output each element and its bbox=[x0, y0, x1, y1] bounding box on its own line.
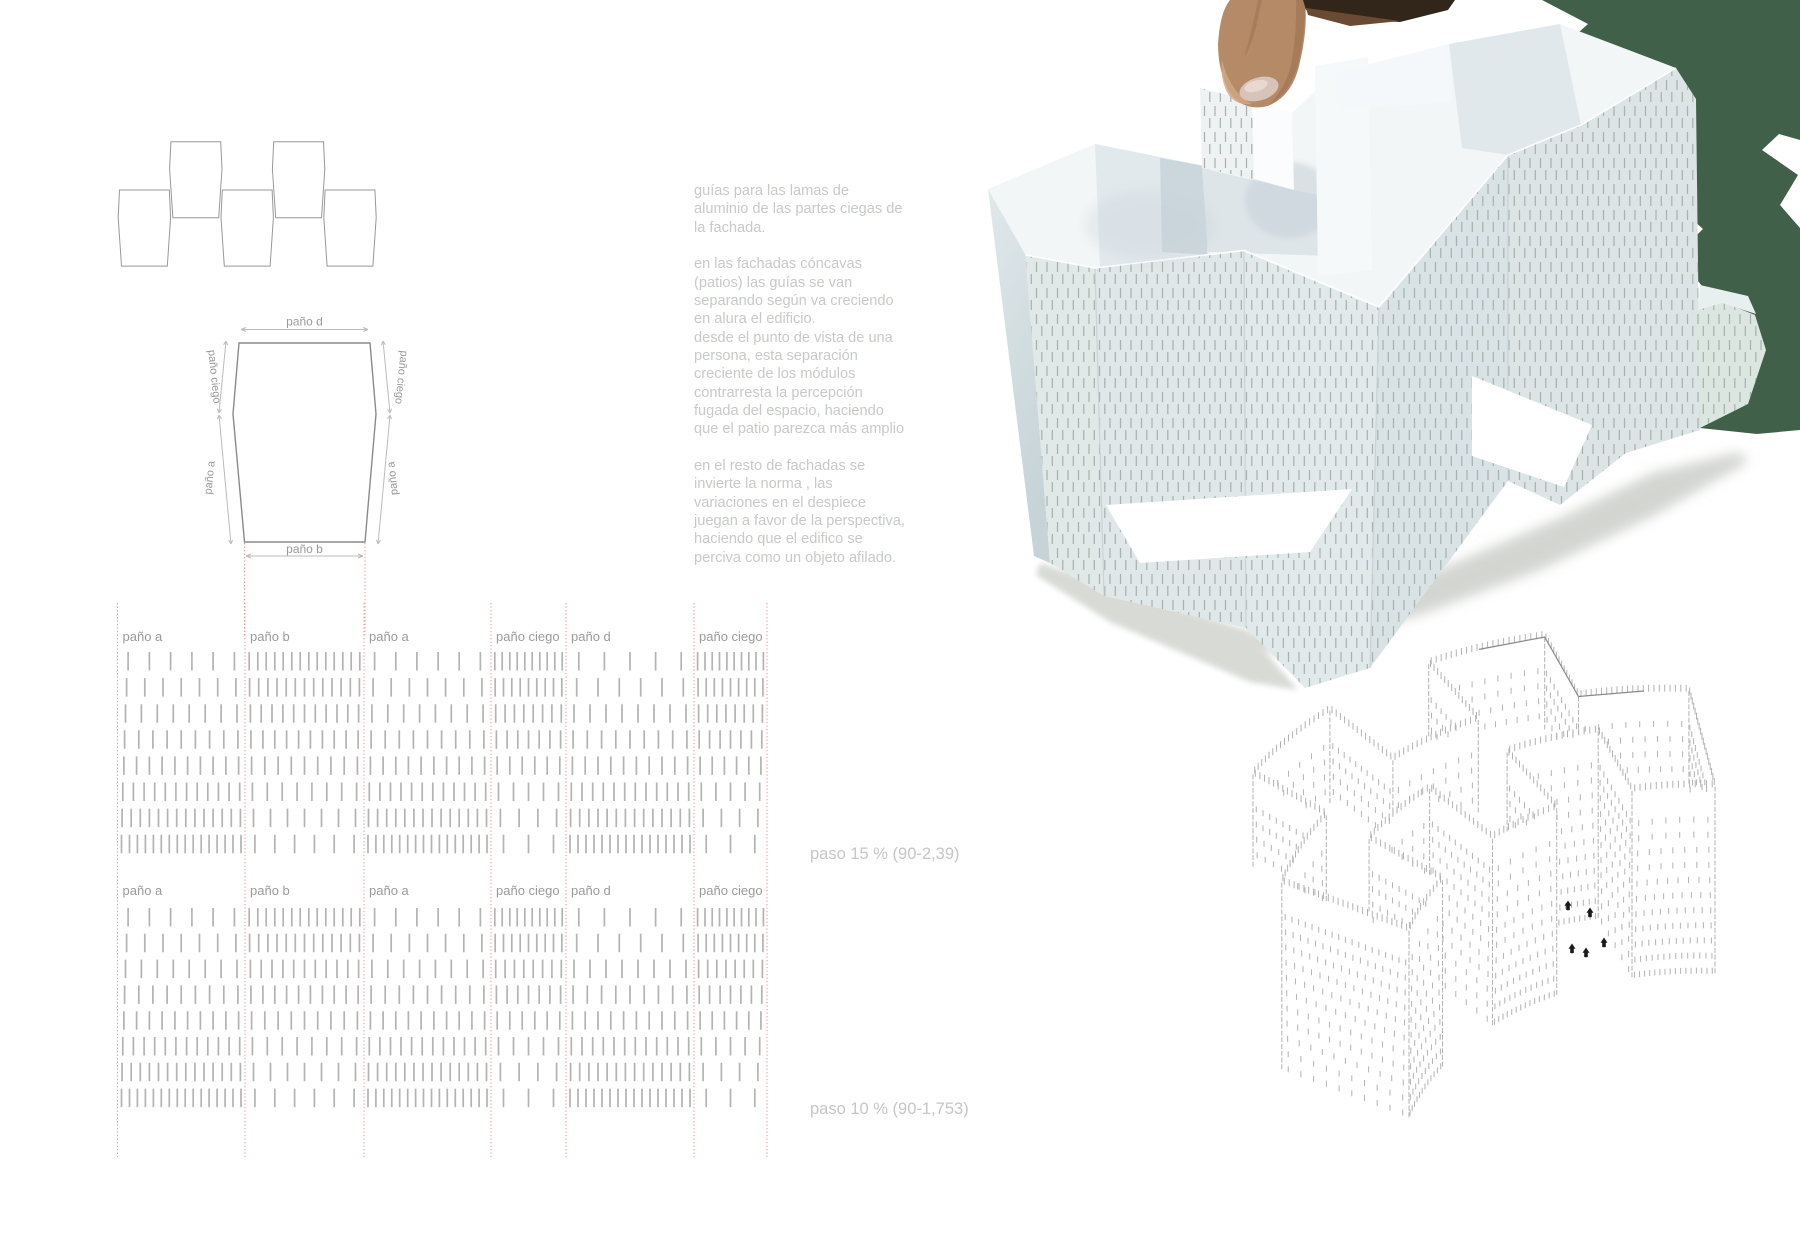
svg-text:paño a: paño a bbox=[385, 460, 401, 496]
svg-text:paño a: paño a bbox=[202, 459, 218, 495]
svg-text:paño a: paño a bbox=[369, 883, 410, 898]
svg-text:paño ciego: paño ciego bbox=[496, 883, 560, 898]
svg-text:paño d: paño d bbox=[571, 629, 611, 644]
svg-text:paño b: paño b bbox=[250, 883, 290, 898]
svg-text:paño a: paño a bbox=[123, 883, 164, 898]
svg-text:paño b: paño b bbox=[286, 542, 323, 556]
svg-text:paño ciego: paño ciego bbox=[699, 883, 763, 898]
svg-text:paño ciego: paño ciego bbox=[496, 629, 560, 644]
svg-text:paño ciego: paño ciego bbox=[205, 349, 223, 404]
svg-text:paño a: paño a bbox=[123, 629, 164, 644]
svg-text:paño d: paño d bbox=[286, 315, 323, 329]
svg-text:paño ciego: paño ciego bbox=[392, 350, 410, 405]
svg-text:paño ciego: paño ciego bbox=[699, 629, 763, 644]
svg-text:paño a: paño a bbox=[369, 629, 410, 644]
svg-text:paño d: paño d bbox=[571, 883, 611, 898]
svg-text:paño b: paño b bbox=[250, 629, 290, 644]
